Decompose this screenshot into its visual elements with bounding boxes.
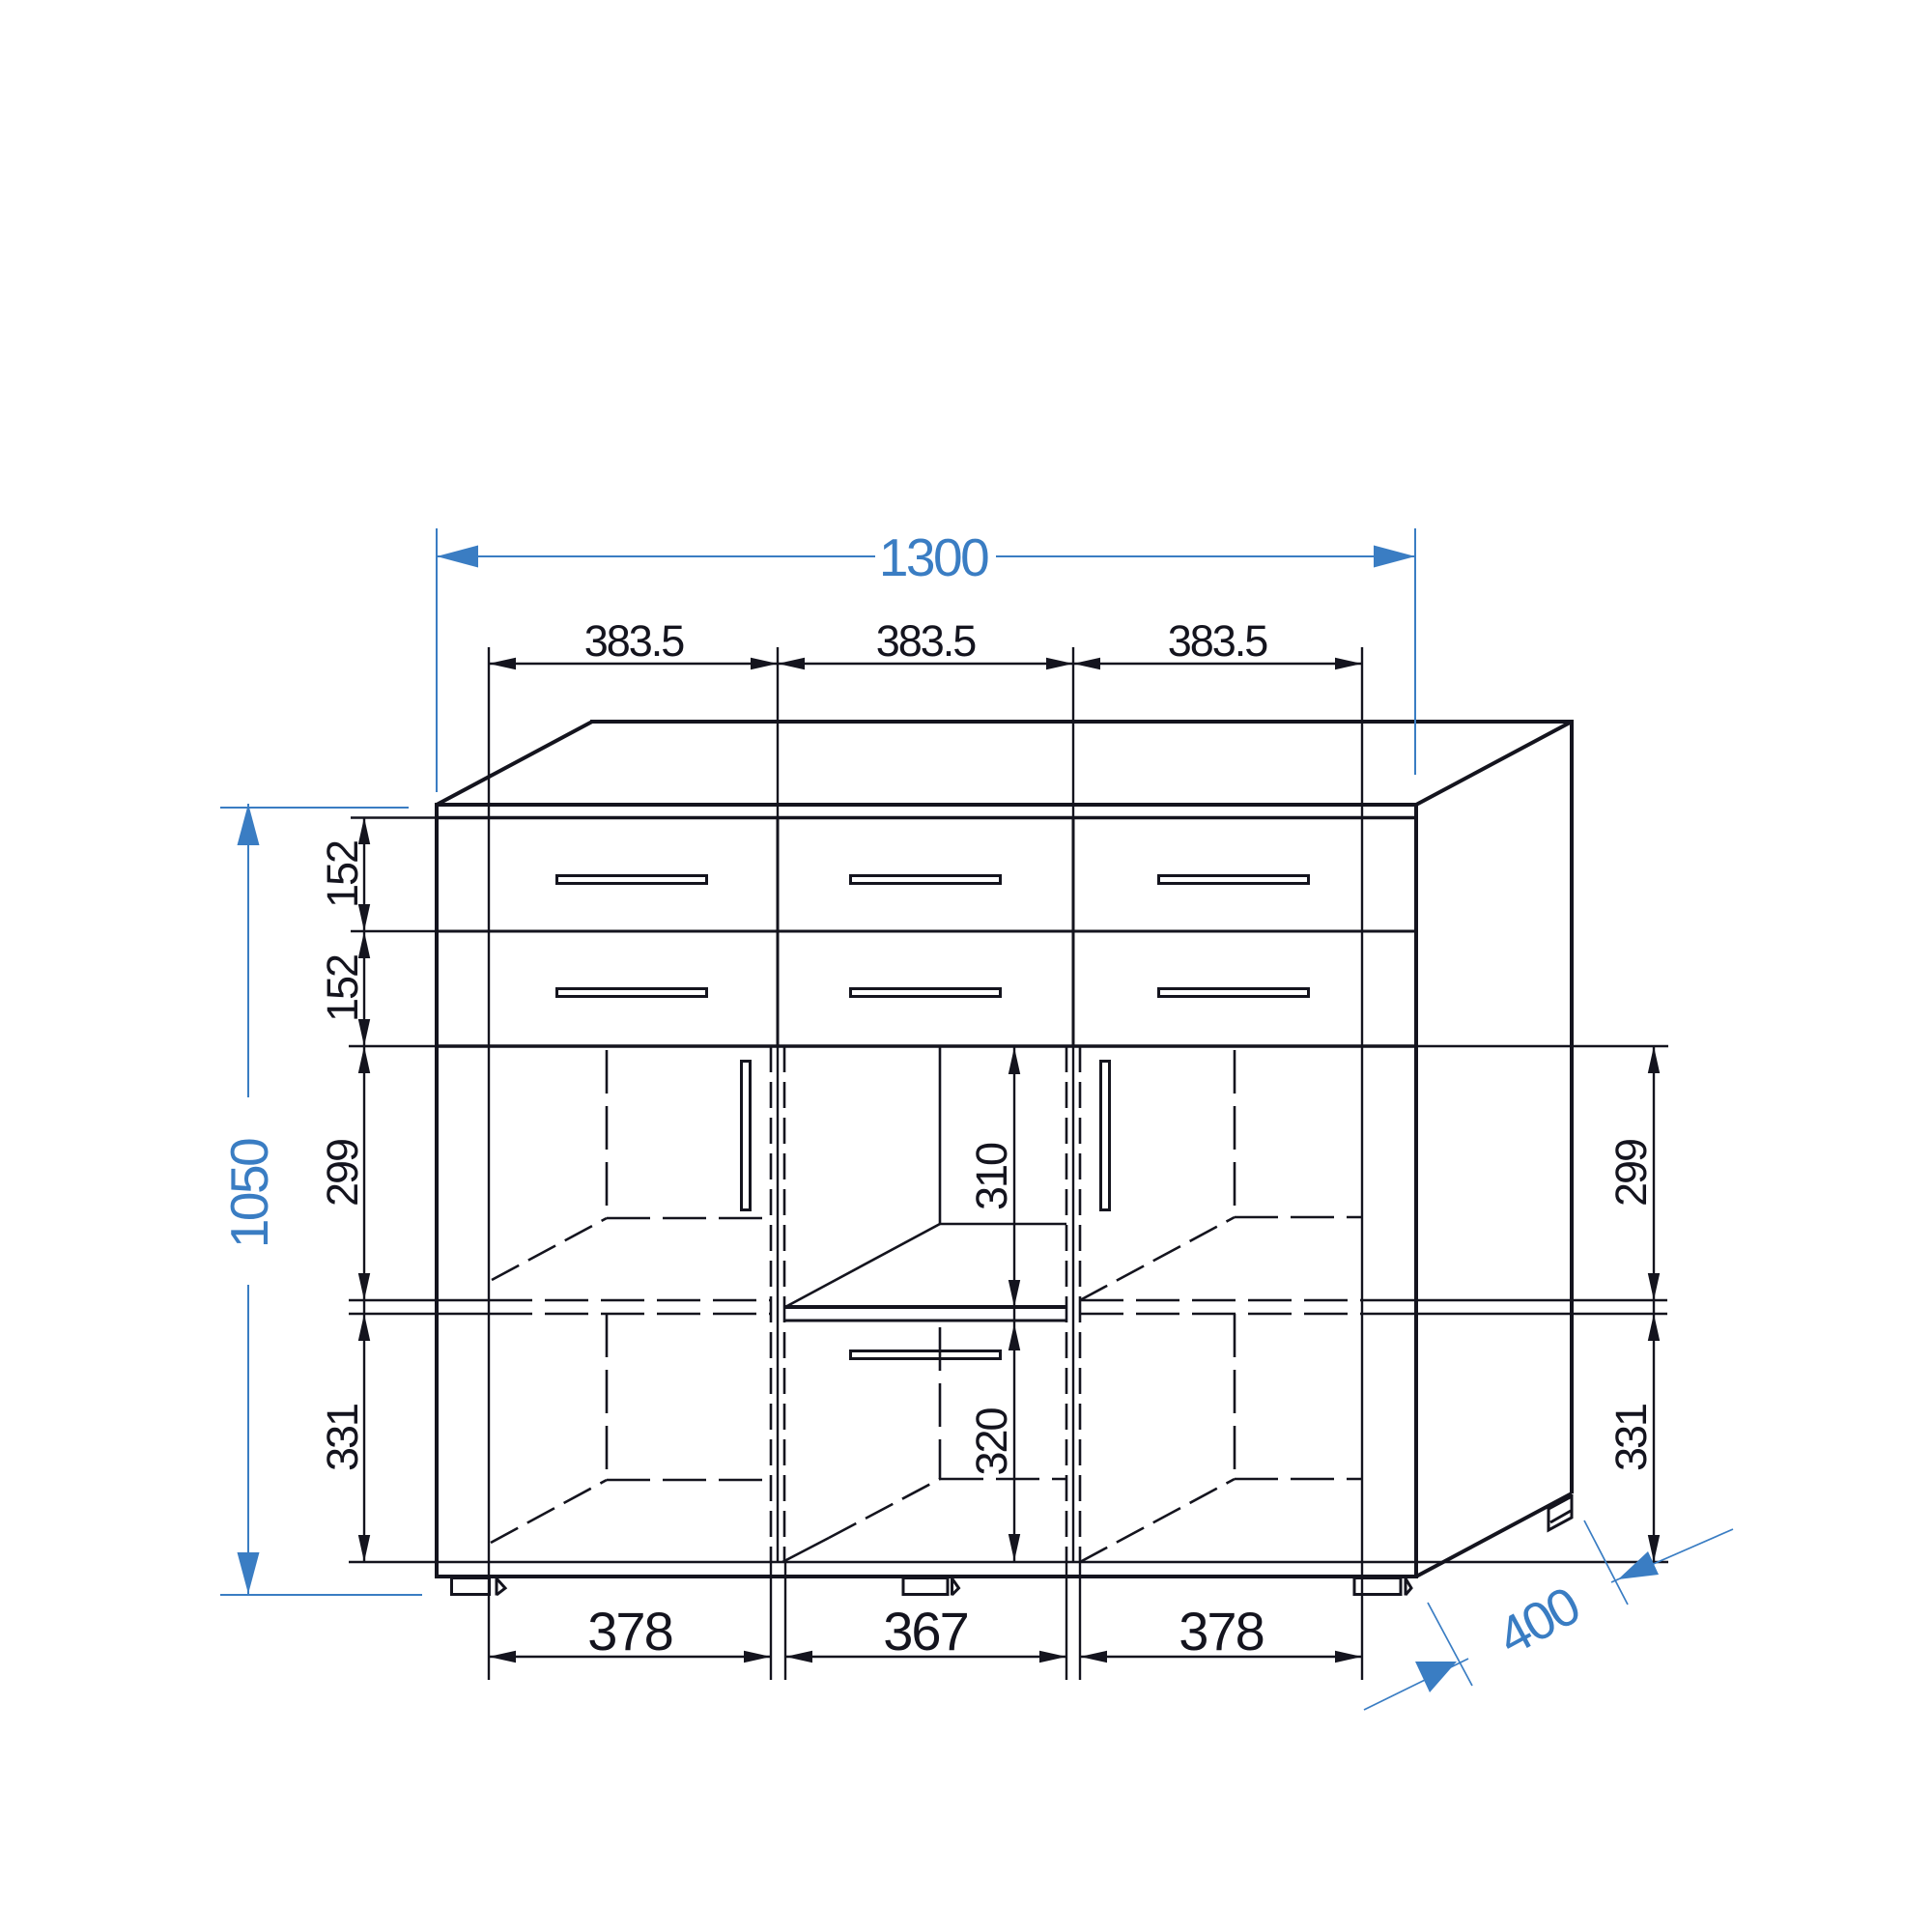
svg-text:320: 320 xyxy=(967,1407,1016,1475)
svg-text:367: 367 xyxy=(883,1601,967,1662)
svg-text:152: 152 xyxy=(318,841,367,908)
svg-text:299: 299 xyxy=(1606,1140,1656,1207)
svg-text:331: 331 xyxy=(1606,1405,1656,1471)
svg-text:383.5: 383.5 xyxy=(876,616,977,666)
svg-text:378: 378 xyxy=(1179,1601,1263,1662)
svg-text:152: 152 xyxy=(318,955,367,1022)
svg-text:1050: 1050 xyxy=(219,1139,279,1248)
svg-text:383.5: 383.5 xyxy=(584,616,685,666)
svg-text:299: 299 xyxy=(318,1140,367,1207)
svg-text:331: 331 xyxy=(318,1405,367,1471)
svg-text:378: 378 xyxy=(587,1601,671,1662)
svg-text:310: 310 xyxy=(967,1143,1016,1210)
svg-text:1300: 1300 xyxy=(879,527,988,587)
svg-text:383.5: 383.5 xyxy=(1168,616,1268,666)
